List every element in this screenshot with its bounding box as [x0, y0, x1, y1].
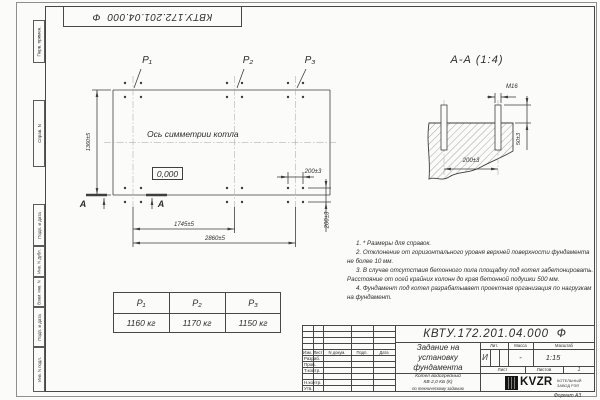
titleblock-line	[373, 325, 374, 392]
sheets-label: Листов	[525, 366, 563, 373]
doc-title-line: Задание на	[396, 342, 480, 352]
technical-notes: 1. * Размеры для справок. 2. Отклонение …	[347, 240, 597, 303]
section-title: А-А (1:4)	[432, 53, 522, 67]
dim-span-mid-label: 1745±5	[160, 220, 208, 229]
scale-value: 1:15	[533, 349, 573, 366]
dim-protrusion-label: 50±3	[513, 126, 525, 152]
load-table-header: P₁	[113, 292, 169, 313]
kvzr-caption-line: ЗАВОД РЭП	[557, 383, 597, 388]
titleblock-line	[499, 349, 500, 366]
titleblock-line	[490, 349, 491, 366]
scale-header: Масштаб	[533, 342, 595, 349]
cut-letter-left: А	[77, 198, 89, 209]
titleblock-line	[302, 343, 395, 344]
kvzr-logo-text: KVZR	[520, 376, 553, 388]
mass-header: Масса	[508, 342, 533, 349]
note-1: 1. * Размеры для справок.	[347, 240, 597, 249]
load-table-header: P₂	[169, 292, 225, 313]
section-view-arrows	[104, 198, 152, 209]
kvzr-logo-caption: КОТЕЛЬНЫЙ ЗАВОД РЭП	[557, 378, 597, 389]
note-2: 2. Отклонение от горизонтального уровня …	[347, 249, 597, 267]
load-label-p2: P₂	[236, 54, 260, 66]
dim-group-h-label: 200±3	[295, 167, 331, 176]
titleblock-line	[323, 325, 324, 392]
doc-title-line: фундамента	[396, 362, 480, 372]
kvzr-logo-mark-icon	[505, 376, 518, 390]
titleblock-line	[302, 331, 395, 332]
elevation-mark: 0,000	[152, 167, 183, 180]
cut-letter-right: А	[155, 198, 167, 209]
rev-header: N докум.	[323, 349, 351, 355]
load-table-value: 1160 кг	[113, 313, 169, 333]
rev-header: Дата	[373, 349, 395, 355]
dim-bolt-spacing-label: 200±3	[453, 156, 489, 165]
sheets-value: 1	[563, 366, 595, 373]
dim-span-total-label: 2860±5	[191, 234, 239, 243]
titleblock-line	[351, 325, 352, 392]
sheet-label: Лист	[480, 366, 525, 373]
doc-title-line: установку	[396, 352, 480, 362]
load-table-value: 1150 кг	[225, 313, 281, 333]
titleblock-line	[302, 337, 395, 338]
load-table-header: P₃	[225, 292, 281, 313]
dim-group-v-label: 200±3	[320, 205, 334, 235]
format-label: Формат А3	[540, 392, 595, 400]
load-leaders	[134, 69, 306, 88]
product-name-line: по техническому заданию	[396, 385, 480, 392]
bolt-thread-label: М16	[506, 84, 518, 90]
dim-m16	[487, 93, 516, 103]
mass-value: -	[508, 349, 533, 366]
note-3: 3. В случае отсутствия бетонного пола пл…	[347, 267, 597, 285]
symmetry-axis-label: Ось симметрии котла	[147, 129, 239, 139]
drawing-sheet: КВТУ.172.201.04.000 Ф Перв. примен. Спра…	[0, 0, 600, 400]
titleblock-designation: КВТУ.172.201.04.000 Ф	[396, 325, 594, 342]
lit-value: И	[480, 349, 490, 366]
rev-header: Подп.	[351, 349, 373, 355]
load-table-value: 1170 кг	[169, 313, 225, 333]
note-4: 4. Фундамент под котел разрабатывает про…	[347, 285, 597, 303]
load-label-p1: P₁	[135, 54, 159, 66]
lit-header: Лит.	[480, 342, 508, 349]
load-label-p3: P₃	[298, 54, 322, 66]
sig-row-label: Утв.	[304, 385, 323, 392]
dim-height-label: 1360±5	[82, 128, 96, 156]
